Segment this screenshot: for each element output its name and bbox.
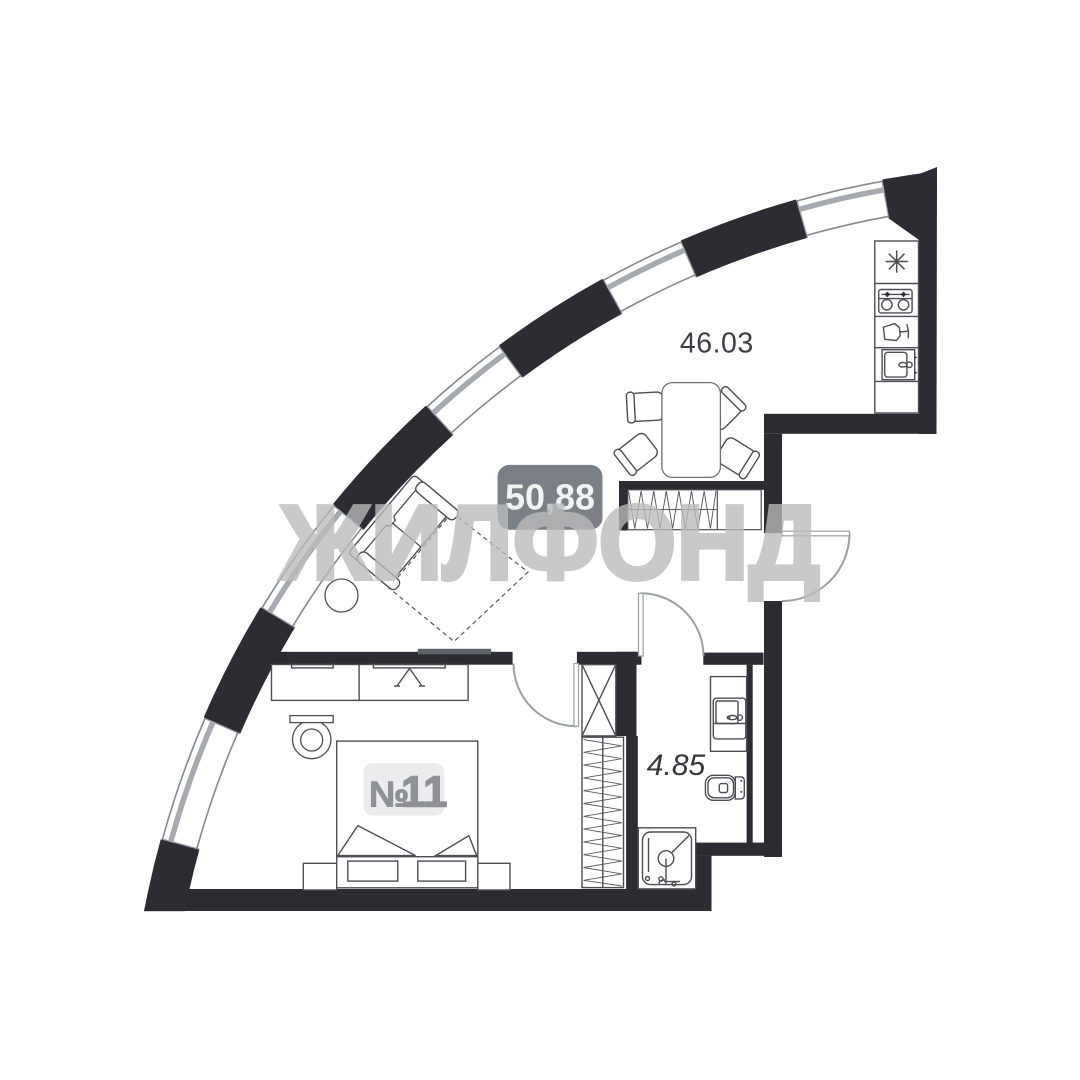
svg-text:11: 11 <box>401 768 448 817</box>
svg-text:46.03: 46.03 <box>680 328 754 360</box>
svg-text:4.85: 4.85 <box>647 749 706 782</box>
svg-text:ЖИЛФОНД: ЖИЛФОНД <box>279 484 820 602</box>
